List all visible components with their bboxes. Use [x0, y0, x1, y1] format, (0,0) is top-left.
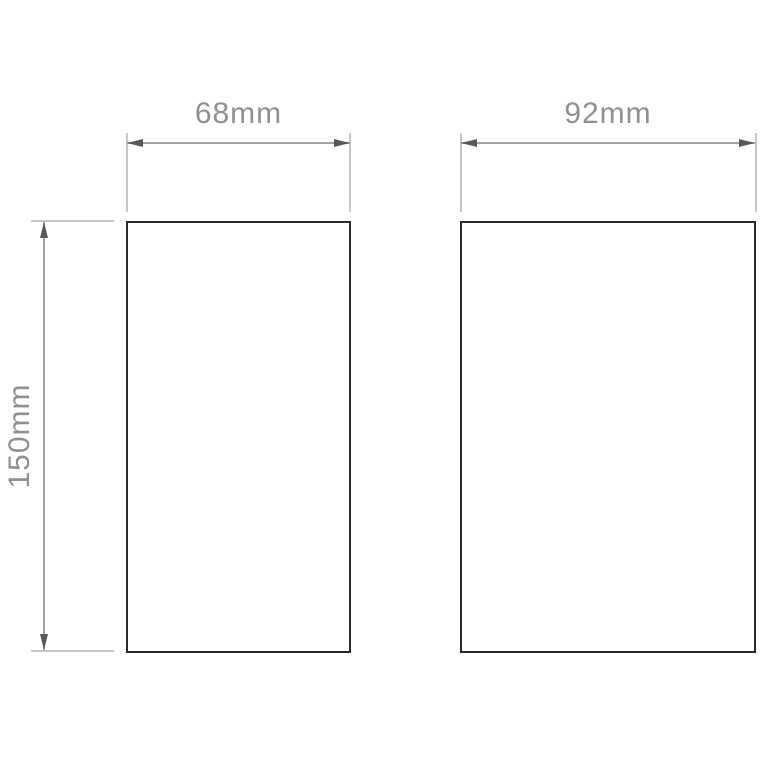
diagram-canvas: 150mm 68mm 92mm [0, 0, 768, 768]
arrowhead-right-icon [334, 139, 350, 147]
left-width-dimension-label: 68mm [126, 98, 351, 130]
right-shape-outline [460, 221, 756, 653]
arrowhead-up-icon [40, 222, 48, 238]
extension-line-92-right [755, 133, 757, 212]
dimension-line-150 [43, 222, 45, 650]
arrowhead-left-icon [127, 139, 143, 147]
dimension-line-92 [461, 142, 755, 144]
arrowhead-right-icon [739, 139, 755, 147]
extension-line-150-bottom [31, 650, 114, 652]
arrowhead-down-icon [40, 634, 48, 650]
right-width-dimension-label: 92mm [460, 98, 756, 130]
dimension-line-68 [127, 142, 350, 144]
arrowhead-left-icon [461, 139, 477, 147]
height-dimension-label: 150mm [4, 336, 36, 536]
left-shape-outline [126, 221, 351, 653]
